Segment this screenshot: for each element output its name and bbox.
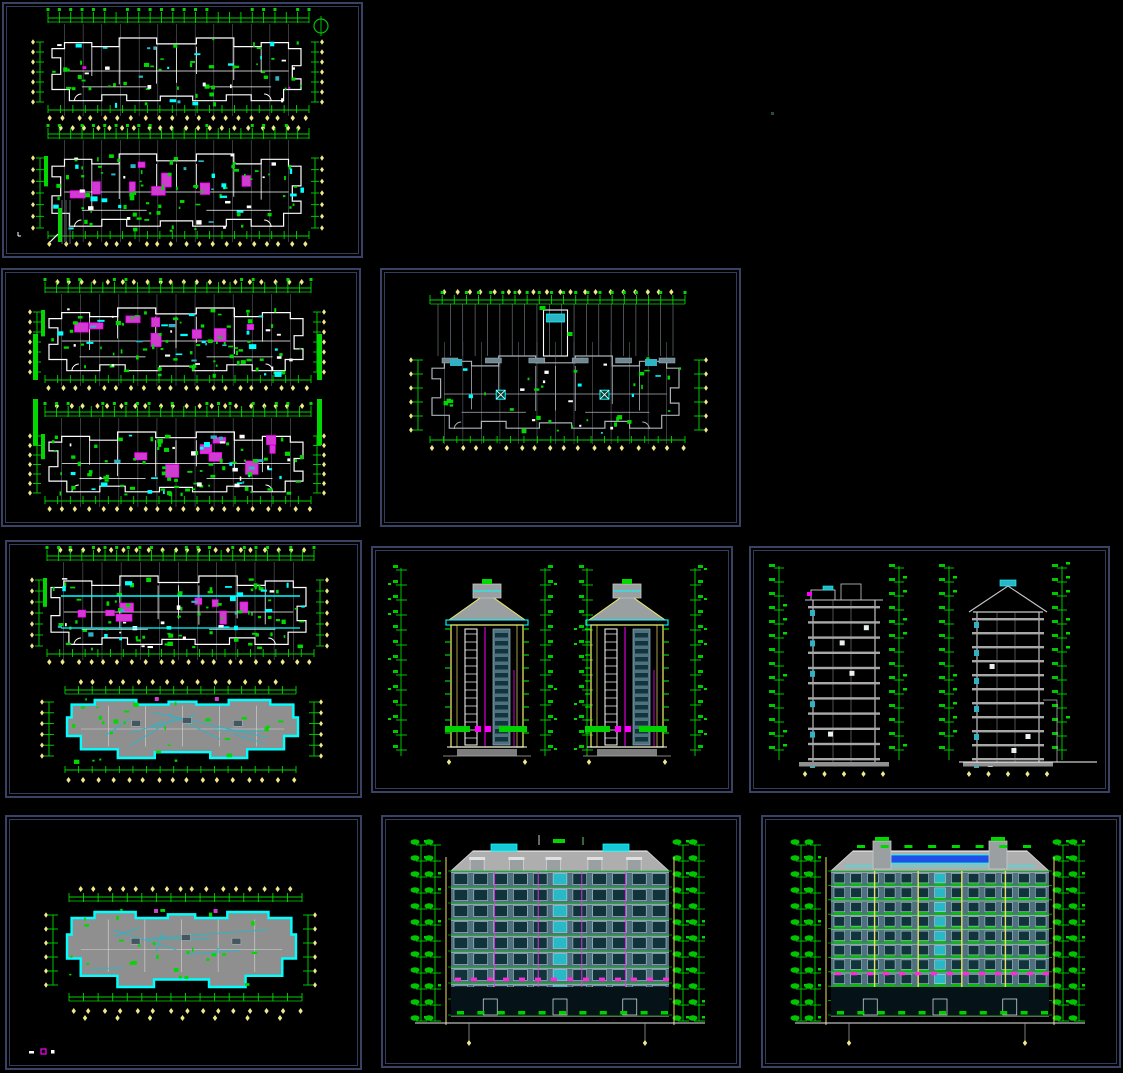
viewport-side-elevations[interactable] xyxy=(371,546,733,793)
floor-plans-2-drawing xyxy=(5,272,353,519)
viewport-floor-plan-single[interactable] xyxy=(380,268,741,527)
viewport-floor-plans-1[interactable] xyxy=(2,2,363,258)
rear-elevation-drawing xyxy=(765,819,1113,1060)
tower-side-elevation xyxy=(583,579,671,765)
viewport-roof-plan[interactable] xyxy=(5,815,362,1070)
viewport-sections[interactable] xyxy=(749,546,1110,793)
legend-marks xyxy=(29,1049,55,1054)
roof-plan-shape xyxy=(67,697,298,764)
tower-side-elevation xyxy=(443,579,531,765)
viewport-rear-elevation[interactable] xyxy=(761,815,1121,1068)
sections-drawing xyxy=(753,550,1102,785)
viewport-plan-and-roof[interactable] xyxy=(5,540,362,798)
viewport-floor-plans-2[interactable] xyxy=(1,268,361,527)
rear-elevation xyxy=(791,837,1086,1046)
plan-and-roof-drawing xyxy=(9,544,354,790)
floor-plan-single-drawing xyxy=(384,272,733,519)
building-section xyxy=(959,580,1097,777)
front-elevation xyxy=(411,835,706,1046)
north-arrow-icon xyxy=(314,16,328,36)
stray-pixel-artifact xyxy=(771,112,774,115)
floor-plans-1-drawing xyxy=(6,6,355,250)
building-section xyxy=(799,584,889,777)
roof-plan-drawing xyxy=(9,819,354,1062)
cad-sheet-grid xyxy=(0,0,1123,1073)
roof-plan-shape xyxy=(67,909,296,987)
viewport-front-elevation[interactable] xyxy=(381,815,741,1068)
front-elevation-drawing xyxy=(385,819,733,1060)
side-elevations-drawing xyxy=(375,550,725,785)
